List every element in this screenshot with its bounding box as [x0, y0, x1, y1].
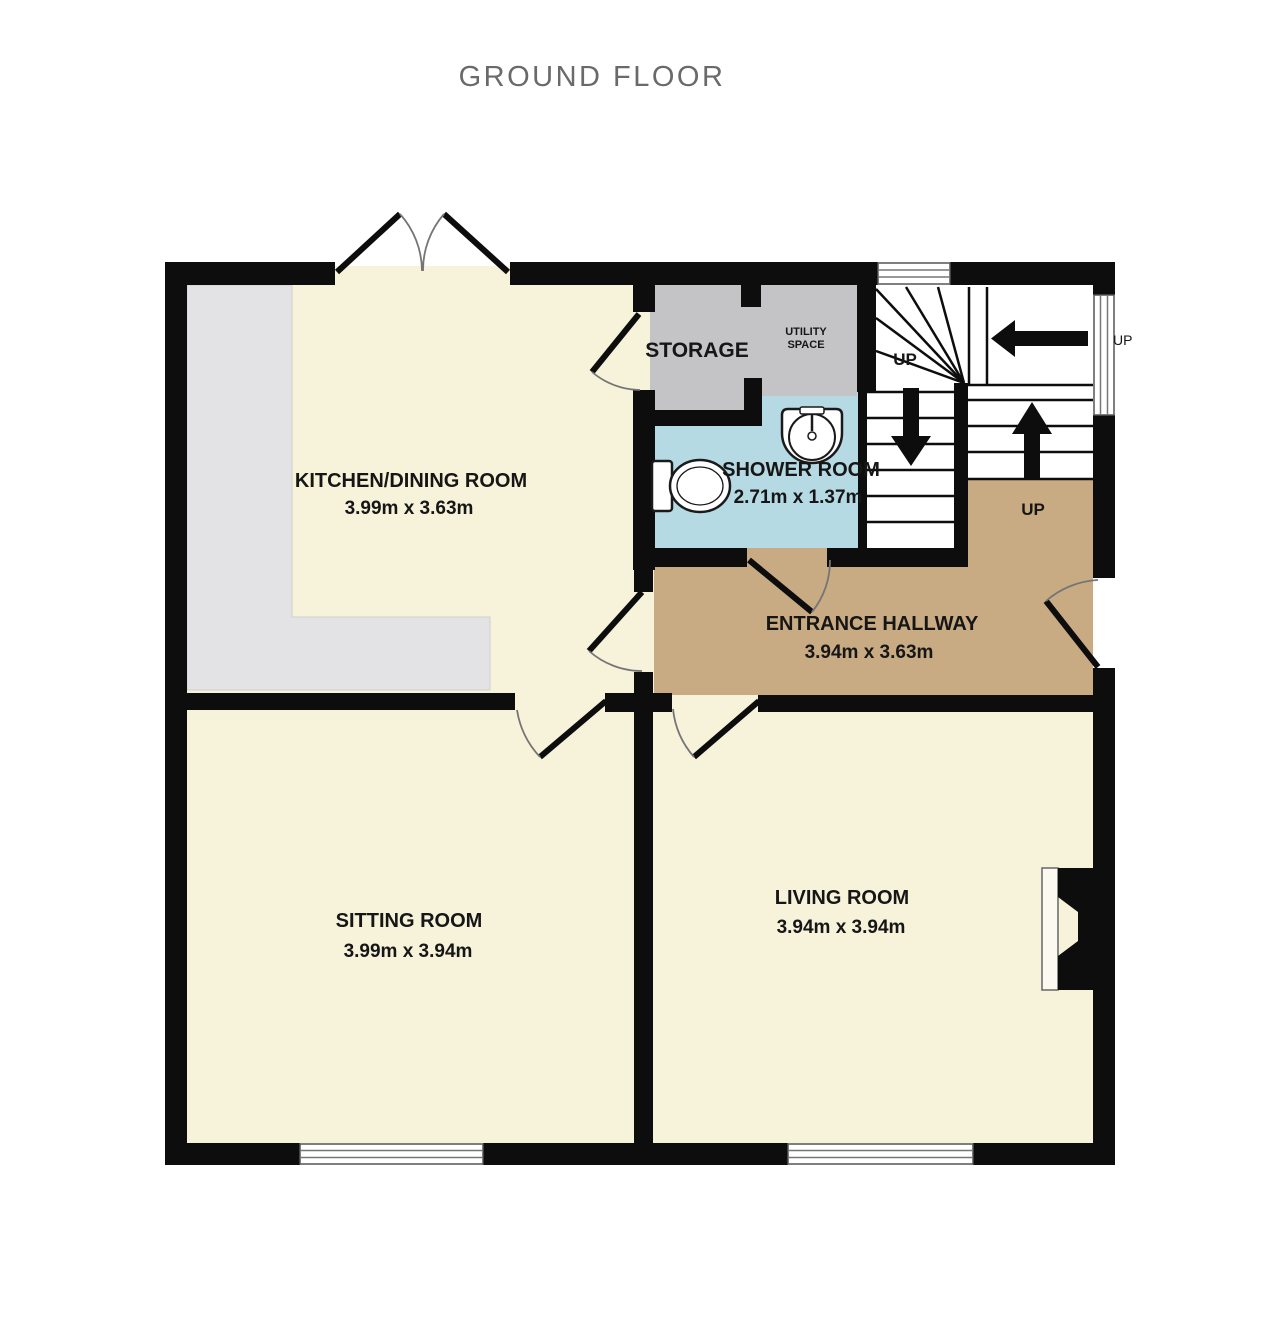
window-right-stairs [1094, 295, 1114, 415]
wall-storage-utility-stub-top [741, 285, 761, 307]
wall-right-2 [1093, 415, 1115, 578]
kitchen-dims: 3.99m x 3.63m [345, 498, 474, 519]
wall-bottom-2 [483, 1143, 788, 1165]
toilet [652, 460, 730, 512]
sink [782, 407, 842, 463]
wall-storage-bottom [648, 410, 762, 426]
wall-top-right [950, 262, 1115, 285]
hallway-dims: 3.94m x 3.63m [805, 642, 934, 663]
shower-room-label: SHOWER ROOM [722, 459, 880, 481]
window-living-room [788, 1144, 973, 1164]
wall-top-left [165, 262, 335, 285]
floor-plan: GROUND FLOOR KITCHEN/DINING ROOM 3.99m x… [0, 0, 1280, 1340]
shower-room-dims: 2.71m x 1.37m [734, 487, 863, 508]
toilet-bowl [670, 460, 730, 512]
living-room-dims: 3.94m x 3.94m [777, 917, 906, 938]
wall-right-1 [1093, 262, 1115, 295]
stairs-up-label-outside: UP [1113, 332, 1132, 348]
french-doors-kitchen [337, 214, 508, 272]
window-top-stairs [878, 263, 950, 284]
wall-kitchen-hall-stub [634, 570, 653, 592]
wall-kitchen-sitting [165, 693, 515, 710]
wall-kitchen-storage-stub [633, 285, 655, 312]
page-title: GROUND FLOOR [459, 61, 726, 93]
wall-cross-junction [605, 693, 672, 712]
wall-bottom-1 [165, 1143, 300, 1165]
sink-drain [808, 432, 816, 440]
wall-right-3 [1093, 668, 1115, 1165]
living-room-label: LIVING ROOM [775, 887, 909, 909]
hallway-label: ENTRANCE HALLWAY [766, 613, 979, 635]
sitting-room-dims: 3.99m x 3.94m [344, 941, 473, 962]
utility-space-label-line1: UTILITY [785, 326, 827, 338]
stairs-up-label-hallway: UP [1021, 500, 1045, 519]
wall-storage-utility-stub-bottom [744, 378, 762, 412]
wall-hall-living [758, 695, 1115, 712]
storage-label: STORAGE [645, 339, 748, 362]
wall-stair-flight-divider [954, 383, 968, 567]
fireplace-hearth [1042, 868, 1058, 990]
wall-cross-stub-up [634, 672, 653, 693]
wall-sitting-living [634, 710, 653, 1143]
sink-tap [800, 407, 824, 414]
floor-plan-page: GROUND FLOOR KITCHEN/DINING ROOM 3.99m x… [0, 0, 1280, 1340]
wall-shower-bottom-right [827, 548, 968, 567]
kitchen-label: KITCHEN/DINING ROOM [295, 470, 527, 492]
stairs-up-label-winder: UP [893, 350, 917, 369]
wall-left [165, 262, 187, 1165]
sitting-room-label: SITTING ROOM [336, 910, 483, 932]
window-sitting-room [300, 1144, 483, 1164]
wall-utility-stairs [857, 285, 876, 392]
utility-space-label-line2: SPACE [787, 339, 824, 351]
wall-shower-bottom-left [633, 548, 747, 567]
wall-top-mid [510, 262, 878, 285]
